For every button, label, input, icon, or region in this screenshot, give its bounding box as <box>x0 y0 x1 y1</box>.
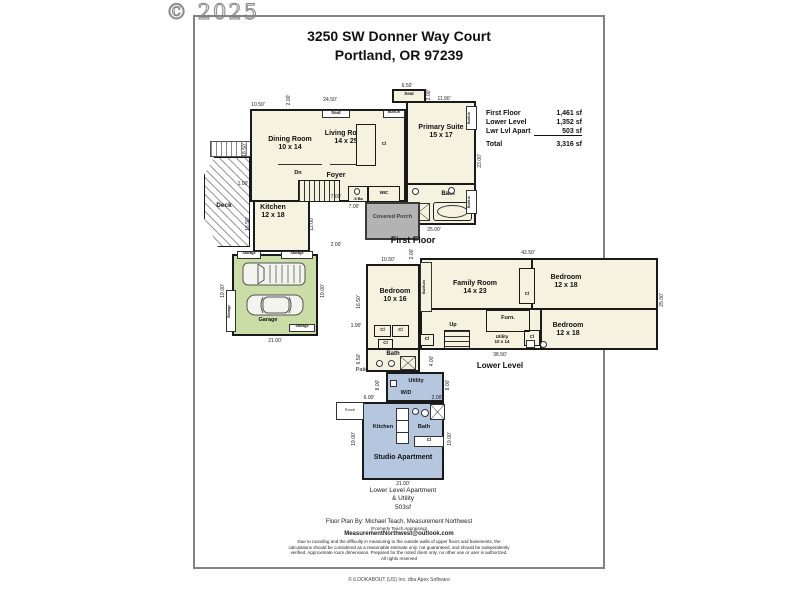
porch-label: Porch <box>336 408 364 412</box>
stairs-up <box>444 330 470 349</box>
closet-label: Cl <box>374 328 391 333</box>
garage-label: Garage <box>248 317 288 323</box>
dryer-icon <box>540 341 547 348</box>
studio-bath-label: Bath <box>410 424 438 430</box>
toilet-icon <box>376 360 383 367</box>
summary-label: Lwr Lvl Apart <box>486 128 530 136</box>
washer-icon <box>526 340 535 348</box>
dim-label: 23.00' <box>477 151 483 171</box>
dim-label: 19.00' <box>447 429 453 449</box>
sink-icon <box>412 408 419 415</box>
summary-value: 1,461 sf <box>534 110 582 117</box>
dim-label: 21.00' <box>255 338 295 344</box>
address-line-2: Portland, OR 97239 <box>193 46 605 65</box>
built-in-label: Built-in <box>383 111 405 115</box>
dining-room-label: Dining Room 10 x 14 <box>258 136 322 153</box>
furnace-label: Furn. <box>488 315 528 321</box>
closet-label: Cl <box>378 341 393 346</box>
summary-value: 503 sf <box>534 128 582 136</box>
utility-room-label: Utility 10 x 14 <box>482 335 522 345</box>
dim-label: 38.50' <box>488 352 512 358</box>
storage-label: Storage <box>281 252 313 256</box>
closet-box <box>519 268 535 304</box>
dim-label: 2.00' <box>286 91 292 109</box>
studio-utility-label: Utility <box>396 378 436 384</box>
storage-label: Storage <box>226 290 236 332</box>
dim-label: 2.00' <box>326 242 346 248</box>
contact-email: MeasurementNorthwest@outlook.com <box>283 531 515 537</box>
page-title: 3250 SW Donner Way Court Portland, OR 97… <box>193 27 605 65</box>
dim-label: 18.50' <box>242 140 248 160</box>
bedroom-left-label: Bedroom 10 x 16 <box>372 288 418 305</box>
seat-label: Seat <box>394 92 424 97</box>
disclaimer-text: Due to rounding and the difficulty in me… <box>288 539 510 562</box>
bath-wall <box>366 348 420 350</box>
built-in-side-label: Built-in <box>466 190 477 214</box>
dim-label: 6.50' <box>397 83 417 89</box>
dim-label: 1.00' <box>234 181 252 187</box>
hall-wall <box>420 308 658 310</box>
dim-label: 6.50' <box>356 350 362 368</box>
dim-label: 12.00' <box>309 214 315 234</box>
summary-row: Lower Level 1,352 sf <box>486 119 582 126</box>
studio-caption: Lower Level Apartment & Utility 503sf <box>343 487 463 512</box>
truck-icon <box>242 261 306 287</box>
first-floor-caption: First Floor <box>368 235 458 246</box>
studio-kitchen-label: Kitchen <box>366 424 400 430</box>
dim-label: 24.50' <box>320 97 340 103</box>
dim-label: 1.90' <box>347 323 365 329</box>
seat-label: Seat <box>322 111 350 116</box>
dim-label: 7.00' <box>344 204 364 210</box>
bath-wall <box>406 183 476 185</box>
kitchen-label: Kitchen 12 x 18 <box>250 204 296 221</box>
dim-label: 16.50' <box>356 292 362 312</box>
summary-row: First Floor 1,461 sf <box>486 110 582 117</box>
dim-label: 42.50' <box>518 250 538 256</box>
dim-label: 4.00' <box>429 353 435 369</box>
studio-apartment-label: Studio Apartment <box>366 454 440 462</box>
dim-label: 10.50' <box>248 102 268 108</box>
summary-total-label: Total <box>486 141 502 148</box>
sink-icon <box>412 188 419 195</box>
storage-label: Storage <box>237 252 261 256</box>
storage-label: Storage <box>289 325 315 329</box>
dim-label: 2.00' <box>426 87 432 103</box>
prepared-by-line: Floor Plan By: Michael Teach, Measuremen… <box>283 519 515 525</box>
built-in-label: Built-in <box>420 262 432 312</box>
family-room-label: Family Room 14 x 23 <box>444 280 506 297</box>
half-bath-label: .5 Ba <box>348 197 368 201</box>
built-in-side-label: Built-in <box>466 106 477 130</box>
summary-value: 1,352 sf <box>534 119 582 126</box>
washer-dryer-label: W/D <box>390 390 422 396</box>
wic-label: WIC <box>368 191 400 196</box>
stairs-up-label: Up <box>444 322 462 328</box>
closet-label: Cl <box>519 292 535 297</box>
deck-label: Deck <box>206 202 242 209</box>
floor-break-line <box>278 164 322 165</box>
patio-label: Patio <box>348 367 376 373</box>
dim-label: 8.00' <box>445 377 451 393</box>
sink-icon <box>448 187 455 194</box>
dim-label: 7.00' <box>326 194 346 200</box>
summary-row: Lwr Lvl Apart 503 sf <box>486 128 582 136</box>
area-summary: First Floor 1,461 sf Lower Level 1,352 s… <box>486 110 582 148</box>
dim-label: 25.00' <box>659 290 665 310</box>
dim-label: 10.50' <box>378 257 398 263</box>
covered-porch-label: Covered Porch <box>369 214 416 220</box>
closet-box <box>356 124 376 166</box>
dim-label: 2.00' <box>409 246 415 262</box>
floor-plan-page: © 2025 3250 SW Donner Way Court Portland… <box>0 0 800 600</box>
dim-label: 11.90' <box>434 96 454 102</box>
summary-total-value: 3,316 sf <box>534 141 582 148</box>
dim-label: 2.00' <box>428 395 446 401</box>
closet-label: Cl <box>414 438 444 443</box>
dim-label: 25.00' <box>424 227 444 233</box>
dim-label: 19.00' <box>220 281 226 301</box>
software-copyright: © iLOOKABOUT (US) Inc. dba Apex Software <box>283 577 515 583</box>
stairs-down-label: Dn <box>290 170 306 176</box>
closet-label: Cl <box>378 142 390 147</box>
summary-label: First Floor <box>486 110 521 117</box>
lower-level-caption: Lower Level <box>455 361 545 371</box>
bedroom-top-right-label: Bedroom 12 x 18 <box>538 274 594 291</box>
toilet-icon <box>354 188 360 195</box>
dim-label: 19.00' <box>320 281 326 301</box>
washer-icon <box>390 380 397 387</box>
dim-label: 16.50' <box>245 214 251 234</box>
closet-label: Cl <box>420 337 434 342</box>
shower-icon <box>430 404 445 420</box>
closet-label: Cl <box>392 328 409 333</box>
car-icon <box>246 293 304 317</box>
toilet-icon <box>421 409 429 417</box>
summary-total-row: Total 3,316 sf <box>486 141 582 148</box>
sink-icon <box>388 360 395 367</box>
address-line-1: 3250 SW Donner Way Court <box>193 27 605 46</box>
primary-suite-label: Primary Suite 15 x 17 <box>418 124 464 141</box>
summary-label: Lower Level <box>486 119 526 126</box>
bedroom-bottom-right-label: Bedroom 12 x 18 <box>540 322 596 339</box>
dim-label: 8.00' <box>375 377 381 393</box>
dim-label: 6.00' <box>360 395 378 401</box>
dim-label: 19.00' <box>351 429 357 449</box>
shower-icon <box>400 356 416 370</box>
